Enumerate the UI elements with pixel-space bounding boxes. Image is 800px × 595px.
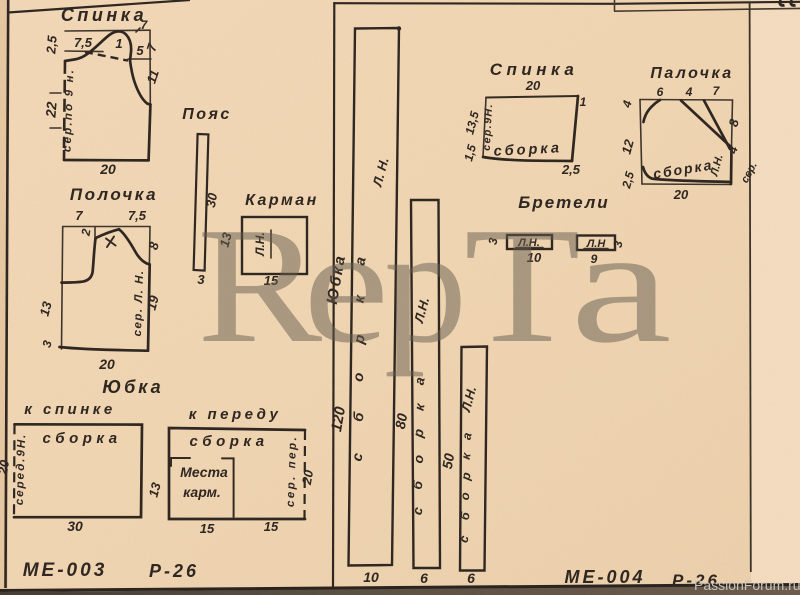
svg-text:PassionForum.ru: PassionForum.ru xyxy=(694,577,800,593)
